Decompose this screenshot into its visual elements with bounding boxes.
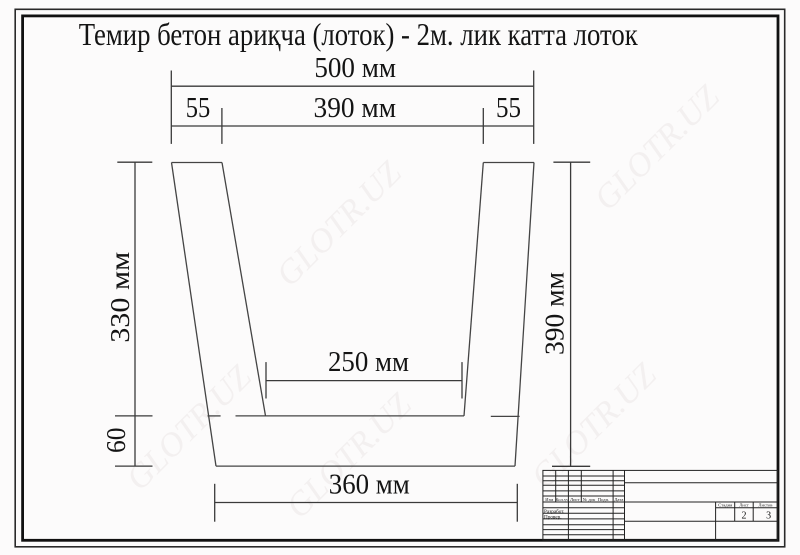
svg-text:390 мм: 390 мм [314,93,397,124]
svg-text:Кол.уч: Кол.уч [555,497,569,502]
svg-text:2: 2 [742,511,747,522]
svg-text:60: 60 [101,427,131,453]
svg-text:Листов: Листов [758,502,773,507]
svg-text:500 мм: 500 мм [314,53,396,84]
svg-text:55: 55 [496,93,521,124]
svg-text:№ док: № док [583,497,596,502]
svg-text:Изм: Изм [545,497,553,502]
svg-text:250 мм: 250 мм [328,347,409,378]
svg-text:Стадия: Стадия [718,502,733,507]
svg-text:Подп.: Подп. [598,497,609,502]
svg-text:55: 55 [186,93,211,124]
svg-text:Провер.: Провер. [544,515,562,521]
svg-text:Лист: Лист [739,502,749,507]
svg-text:330 мм: 330 мм [104,252,135,343]
svg-text:Дата: Дата [614,497,623,502]
svg-text:3: 3 [766,511,771,522]
svg-text:360 мм: 360 мм [329,470,410,501]
svg-text:390 мм: 390 мм [540,272,570,355]
svg-text:Лист: Лист [570,497,580,502]
svg-text:Темир бетон ариқча (лоток) - 2: Темир бетон ариқча (лоток) - 2м. лик кат… [79,16,638,52]
